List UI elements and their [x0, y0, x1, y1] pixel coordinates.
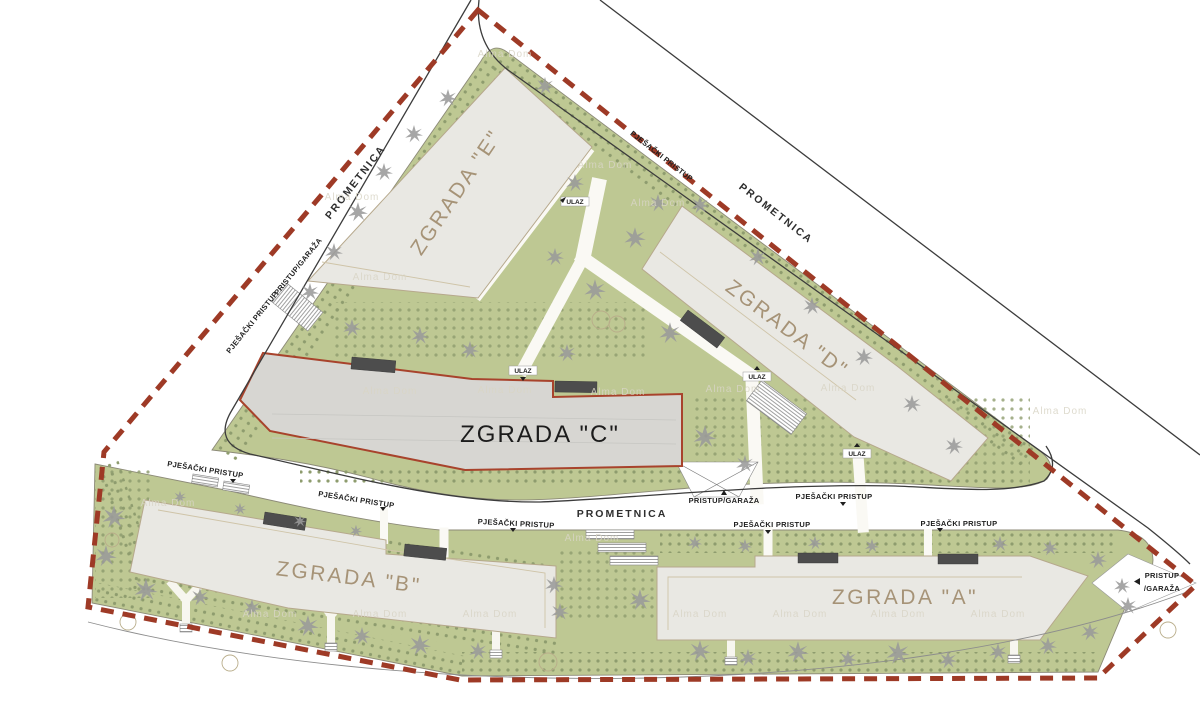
entrance-label: ULAZ	[514, 368, 531, 375]
label-garage-access-right-line1: PRISTUP	[1145, 571, 1180, 580]
alma-dom-watermark: Alma Dom	[578, 160, 633, 171]
alma-dom-watermark: Alma Dom	[871, 609, 926, 620]
alma-dom-watermark: Alma Dom	[821, 383, 876, 394]
label-pedestrian-access-b-north: PJEŠAČKI PRISTUP	[318, 489, 395, 510]
alma-dom-watermark: Alma Dom	[773, 609, 828, 620]
alma-dom-watermark: Alma Dom	[141, 498, 196, 509]
alma-dom-watermark: Alma Dom	[353, 272, 408, 283]
label-garage-access-middle: PRISTUP/GARAŽA	[689, 496, 760, 505]
road-label-prometnica-middle: PROMETNICA	[577, 508, 668, 520]
alma-dom-watermark: Alma Dom	[1033, 406, 1088, 417]
alma-dom-watermark: Alma Dom	[591, 387, 646, 398]
building-label-a: ZGRADA "A"	[832, 586, 978, 609]
alma-dom-watermark: Alma Dom	[363, 386, 418, 397]
tree-icon	[375, 163, 393, 180]
tree-icon	[405, 125, 423, 142]
label-pedestrian-access-middle: PJEŠAČKI PRISTUP	[796, 492, 873, 501]
entrance-label: ULAZ	[748, 374, 765, 381]
alma-dom-watermark: Alma Dom	[325, 192, 380, 203]
entrance-e: ULAZ	[560, 197, 589, 206]
entrance-label: ULAZ	[848, 451, 865, 458]
alma-dom-watermark: Alma Dom	[971, 609, 1026, 620]
alma-dom-watermark: Alma Dom	[463, 609, 518, 620]
label-garage-access-right-line2: /GARAŽA	[1144, 584, 1181, 593]
alma-dom-watermark: Alma Dom	[478, 49, 533, 60]
building-label-c: ZGRADA "C"	[460, 421, 620, 448]
alma-dom-watermark: Alma Dom	[478, 385, 533, 396]
label-pedestrian-access-a-left: PJEŠAČKI PRISTUP	[734, 520, 811, 529]
label-pedestrian-access-a-right: PJEŠAČKI PRISTUP	[921, 519, 998, 528]
alma-dom-watermark: Alma Dom	[706, 384, 761, 395]
site-plan: ULAZ ULAZ ULAZ ULAZ ZGRADA "E" ZGRADA "D…	[0, 0, 1200, 707]
alma-dom-watermark: Alma Dom	[243, 609, 298, 620]
label-pedestrian-access-b-east: PJEŠAČKI PRISTUP	[477, 517, 554, 530]
alma-dom-watermark: Alma Dom	[631, 198, 686, 209]
alma-dom-watermark: Alma Dom	[565, 533, 620, 544]
entrance-label: ULAZ	[566, 199, 583, 206]
alma-dom-watermark: Alma Dom	[353, 609, 408, 620]
alma-dom-watermark: Alma Dom	[673, 609, 728, 620]
